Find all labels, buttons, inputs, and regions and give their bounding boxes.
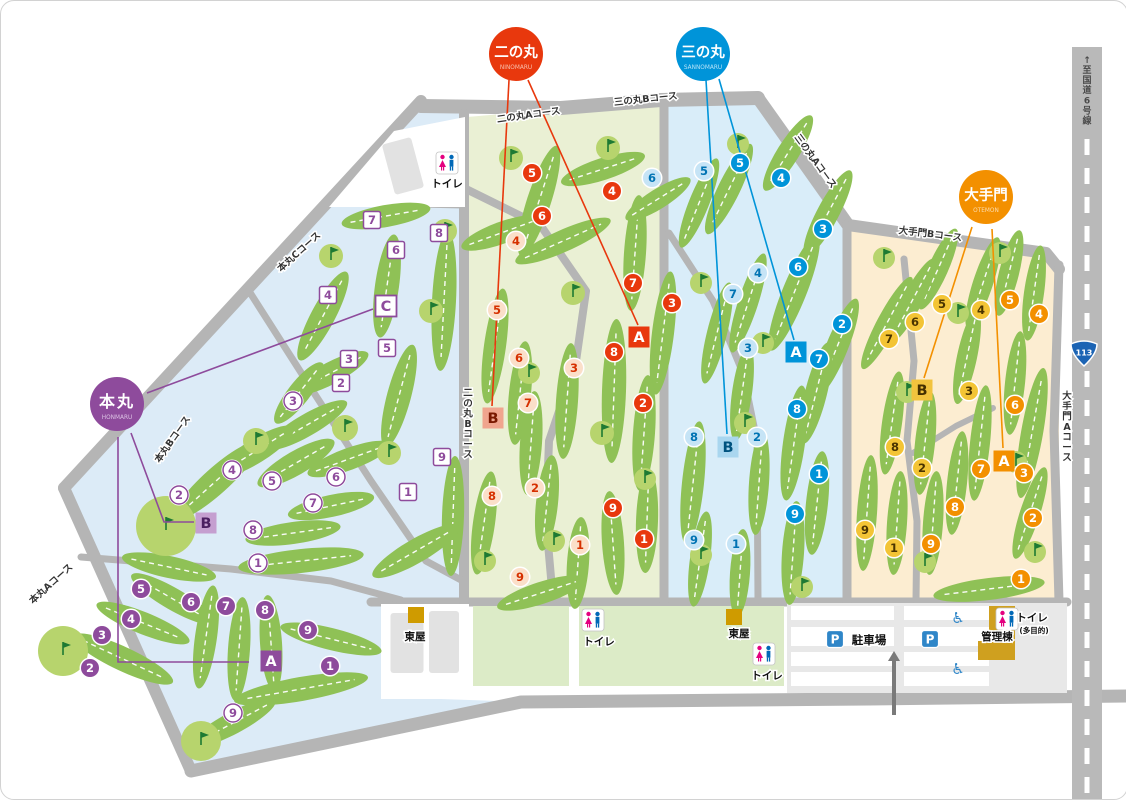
hole-marker-sannomaru-a-1: 1 [809,464,830,485]
hole-marker-honmaru-b-4: 4 [222,460,243,481]
hole-number: 4 [228,463,236,477]
parking-letter: P [831,633,840,647]
hole-marker-sannomaru-a-2: 2 [832,314,853,335]
hole-marker-honmaru-b-7: 7 [303,493,324,514]
hole-number: 4 [324,288,332,302]
hole-marker-otemon-b-8: 8 [885,437,906,458]
management-building-label: 管理棟 [981,630,1013,643]
hole-marker-otemon-b-1: 1 [884,538,905,559]
hole-number: 5 [938,297,946,311]
course-label-letter: A [265,654,277,670]
hole-marker-honmaru-b-2: 2 [169,485,190,506]
hole-marker-otemon-a-3: 3 [1014,463,1035,484]
hole-marker-honmaru-a-5: 5 [131,579,152,600]
course-label-otemon-b: B [912,380,933,401]
course-label-letter: B [722,440,733,456]
hole-marker-sannomaru-b-6: 6 [642,168,663,189]
hole-number: 3 [819,222,827,236]
hole-marker-ninomaru-b-8: 8 [482,486,503,507]
hole-number: 2 [337,376,345,390]
hole-number: 6 [187,595,195,609]
hole-marker-ninomaru-b-9: 9 [510,567,531,588]
toilet-label: トイレ [431,178,463,190]
hole-marker-ninomaru-a-5: 5 [522,163,543,184]
hole-marker-ninomaru-a-4: 4 [602,181,623,202]
hole-number: 6 [1011,398,1019,412]
hole-number: 8 [261,603,269,617]
highway-road [1072,47,1102,799]
course-badge-otemon: 大手門OTEMON [959,170,1013,224]
course-label-honmaru-b: B [196,513,217,534]
road-name-label: 大手門Aコース [1062,390,1072,464]
hole-marker-honmaru-b-3: 3 [283,391,304,412]
hole-number: 3 [1020,466,1028,480]
hole-number: 2 [1029,511,1037,525]
course-label-letter: A [790,345,802,361]
hole-number: 7 [368,213,376,227]
course-name: 二の丸 [494,43,538,61]
course-romaji: OTEMON [973,208,999,214]
hole-marker-otemon-a-6: 6 [1005,395,1026,416]
hole-marker-ninomaru-a-9: 9 [603,498,624,519]
hole-marker-honmaru-c-3: 3 [341,351,358,368]
hole-marker-ninomaru-b-5: 5 [487,300,508,321]
hole-number: 9 [791,507,799,521]
hole-marker-honmaru-b-8: 8 [243,520,264,541]
hole-marker-sannomaru-b-1: 1 [726,534,747,555]
toilet-icon [436,152,458,174]
road-name-label: 本丸Aコース [27,561,75,606]
course-label-letter: B [916,383,927,399]
hole-marker-otemon-b-3: 3 [959,381,980,402]
hole-marker-ninomaru-a-7: 7 [623,273,644,294]
course-name: 本丸 [99,392,135,411]
hole-marker-otemon-b-2: 2 [912,458,933,479]
hole-number: 5 [268,474,276,488]
course-romaji: HONMARU [102,415,133,421]
hole-number: 2 [175,488,183,502]
hole-marker-sannomaru-b-9: 9 [684,530,705,551]
hole-marker-honmaru-c-1: 1 [400,484,417,501]
azumaya-label: 東屋 [729,627,750,640]
hole-marker-sannomaru-b-2: 2 [747,427,768,448]
parking-icon: P [827,631,844,648]
hole-number: 3 [289,394,297,408]
course-label-sannomaru-b: B [718,437,739,458]
hole-number: 5 [383,341,391,355]
hole-marker-otemon-b-7: 7 [879,329,900,350]
hole-marker-honmaru-c-5: 5 [379,340,396,357]
hole-marker-otemon-a-2: 2 [1023,508,1044,529]
hole-marker-sannomaru-b-7: 7 [723,284,744,305]
course-label-ninomaru-a: A [629,327,650,348]
hole-number: 1 [890,541,898,555]
hole-number: 4 [127,612,135,626]
hole-marker-sannomaru-a-5: 5 [730,153,751,174]
hole-marker-honmaru-c-4: 4 [320,287,337,304]
hole-number: 1 [326,659,334,673]
toilet-label: トイレ [751,670,783,682]
route-number: 113 [1076,349,1093,358]
hole-number: 1 [1017,572,1025,586]
parking-row [791,606,894,620]
toilet-label: トイレ [1016,612,1048,624]
hole-marker-sannomaru-a-9: 9 [785,504,806,525]
hole-number: 2 [639,396,647,410]
hole-marker-otemon-b-5: 5 [932,294,953,315]
hole-number: 9 [438,450,446,464]
hole-number: 8 [249,523,257,537]
toilet-icon [996,608,1018,630]
course-label-letter: A [633,330,645,346]
hole-number: 6 [538,209,546,223]
parking-row [904,606,989,620]
hole-marker-ninomaru-b-2: 2 [525,478,546,499]
hole-number: 5 [137,582,145,596]
parking-row [904,652,989,666]
hole-number: 8 [488,489,496,503]
hole-marker-honmaru-a-4: 4 [121,609,142,630]
lawn-strip [473,606,569,686]
hole-number: 7 [524,396,532,410]
course-label-otemon-a: A [994,451,1015,472]
hole-number: 4 [1035,307,1043,321]
course-label-letter: B [487,411,498,427]
hole-number: 1 [732,537,740,551]
hole-number: 3 [744,341,752,355]
hole-marker-honmaru-c-6: 6 [388,242,405,259]
hole-marker-sannomaru-a-8: 8 [787,399,808,420]
boundary-road [1054,265,1059,601]
hole-number: 4 [512,234,520,248]
hole-number: 9 [927,537,935,551]
hole-number: 6 [392,243,400,257]
course-romaji: NINOMARU [500,65,532,71]
parking-row [904,627,989,646]
building [429,611,459,673]
hole-number: 9 [690,533,698,547]
course-label-sannomaru-a: A [786,342,807,363]
hole-number: 2 [86,661,94,675]
hole-number: 7 [977,462,985,476]
hole-marker-sannomaru-a-3: 3 [813,219,834,240]
course-name: 大手門 [964,186,1008,204]
hole-number: 5 [493,303,501,317]
hole-number: 6 [515,351,523,365]
hole-marker-ninomaru-a-3: 3 [662,293,683,314]
hole-marker-sannomaru-a-7: 7 [809,349,830,370]
hole-marker-ninomaru-b-4: 4 [506,231,527,252]
hole-number: 7 [309,496,317,510]
hole-number: 6 [332,470,340,484]
wheelchair-icon: ♿ [951,660,964,678]
hole-marker-sannomaru-b-8: 8 [684,427,705,448]
hole-marker-sannomaru-b-4: 4 [748,263,769,284]
hole-marker-otemon-a-9: 9 [921,534,942,555]
course-romaji: SANNOMARU [684,65,722,71]
hole-marker-otemon-b-6: 6 [905,312,926,333]
hole-number: 4 [977,303,985,317]
hole-marker-otemon-a-8: 8 [945,497,966,518]
hole-number: 1 [815,467,823,481]
hole-number: 9 [861,523,869,537]
course-label-honmaru-a: A [261,651,282,672]
hole-marker-ninomaru-b-7: 7 [518,393,539,414]
toilet-sublabel: (多目的) [1019,625,1048,635]
hole-number: 9 [229,706,237,720]
hole-marker-honmaru-c-2: 2 [333,375,350,392]
hole-number: 3 [98,628,106,642]
hole-number: 3 [345,352,353,366]
hole-number: 9 [304,623,312,637]
hole-marker-ninomaru-a-6: 6 [532,206,553,227]
highway-direction-sign: ↑至国道6号線 [1082,56,1091,126]
course-label-letter: A [998,454,1010,470]
parking-letter: P [926,633,935,647]
hole-number: 1 [640,532,648,546]
hole-number: 4 [754,266,762,280]
course-badge-ninomaru: 二の丸NINOMARU [489,27,543,81]
hole-number: 5 [736,156,744,170]
hole-number: 4 [608,184,616,198]
hole-marker-honmaru-a-9: 9 [298,620,319,641]
hole-marker-otemon-a-5: 5 [1000,290,1021,311]
hole-number: 6 [648,171,656,185]
course-badge-honmaru: 本丸HONMARU [90,377,144,431]
hole-marker-honmaru-b-5: 5 [262,471,283,492]
hole-number: 9 [516,570,524,584]
parking-row [791,652,894,666]
hole-number: 5 [700,164,708,178]
hole-number: 8 [690,430,698,444]
golf-course-map-page: 1234567891234567891234567891234567891234… [0,0,1126,800]
hole-number: 3 [570,361,578,375]
hole-marker-ninomaru-b-1: 1 [570,535,591,556]
hole-marker-honmaru-a-1: 1 [320,656,341,677]
hole-marker-otemon-a-1: 1 [1011,569,1032,590]
hole-marker-ninomaru-a-1: 1 [634,529,655,550]
hole-number: 8 [610,345,618,359]
hole-number: 2 [531,481,539,495]
hole-number: 1 [254,556,262,570]
course-badge-sannomaru: 三の丸SANNOMARU [676,27,730,81]
hole-number: 4 [777,171,785,185]
hole-marker-otemon-b-9: 9 [855,520,876,541]
road-name-label: 二の丸Bコース [462,388,473,461]
hole-marker-ninomaru-b-3: 3 [564,358,585,379]
parking-row [791,672,894,686]
hole-marker-honmaru-a-3: 3 [92,625,113,646]
hole-number: 5 [528,166,536,180]
hole-marker-honmaru-a-8: 8 [255,600,276,621]
toilet-label: トイレ [583,636,615,648]
hole-number: 7 [629,276,637,290]
course-map-canvas: 1234567891234567891234567891234567891234… [1,1,1126,799]
hole-number: 1 [576,538,584,552]
hole-number: 3 [668,296,676,310]
hole-number: 3 [965,384,973,398]
hole-number: 6 [911,315,919,329]
hole-number: 2 [918,461,926,475]
hole-marker-honmaru-b-1: 1 [248,553,269,574]
course-name: 三の丸 [681,43,725,61]
hole-marker-sannomaru-a-4: 4 [771,168,792,189]
hole-number: 2 [838,317,846,331]
hole-marker-sannomaru-b-5: 5 [694,161,715,182]
hole-number: 8 [793,402,801,416]
parking-icon: P [922,631,939,648]
hole-marker-honmaru-c-7: 7 [364,212,381,229]
azumaya-label: 東屋 [405,630,426,643]
hole-number: 6 [794,260,802,274]
hole-marker-honmaru-b-6: 6 [326,467,347,488]
hole-marker-honmaru-a-7: 7 [216,596,237,617]
hole-marker-ninomaru-a-2: 2 [633,393,654,414]
hole-number: 7 [885,332,893,346]
azumaya-icon [726,609,742,625]
course-label-letter: C [381,299,392,315]
hole-marker-honmaru-b-9: 9 [223,703,244,724]
hole-marker-honmaru-c-9: 9 [434,449,451,466]
hole-number: 7 [815,352,823,366]
hole-marker-honmaru-a-2: 2 [80,658,101,679]
hole-marker-ninomaru-a-8: 8 [604,342,625,363]
hole-marker-sannomaru-b-3: 3 [738,338,759,359]
toilet-icon [753,643,775,665]
hole-number: 7 [729,287,737,301]
course-label-letter: B [200,516,211,532]
hole-marker-otemon-a-4: 4 [1029,304,1050,325]
hole-number: 2 [753,430,761,444]
course-label-honmaru-c: C [376,296,397,317]
parking-row [904,672,989,686]
hole-marker-ninomaru-b-6: 6 [509,348,530,369]
hole-marker-otemon-a-7: 7 [971,459,992,480]
hole-number: 7 [222,599,230,613]
hole-number: 5 [1006,293,1014,307]
toilet-icon [582,609,604,631]
hole-number: 1 [404,485,412,499]
hole-number: 9 [609,501,617,515]
hole-marker-sannomaru-a-6: 6 [788,257,809,278]
hole-marker-honmaru-a-6: 6 [181,592,202,613]
hole-number: 8 [891,440,899,454]
hole-marker-honmaru-c-8: 8 [431,225,448,242]
course-label-ninomaru-b: B [483,408,504,429]
wheelchair-icon: ♿ [951,609,964,627]
azumaya-icon [408,607,424,623]
hole-number: 8 [951,500,959,514]
parking-label: 駐車場 [852,633,887,647]
hole-marker-otemon-b-4: 4 [971,300,992,321]
hole-number: 8 [435,226,443,240]
